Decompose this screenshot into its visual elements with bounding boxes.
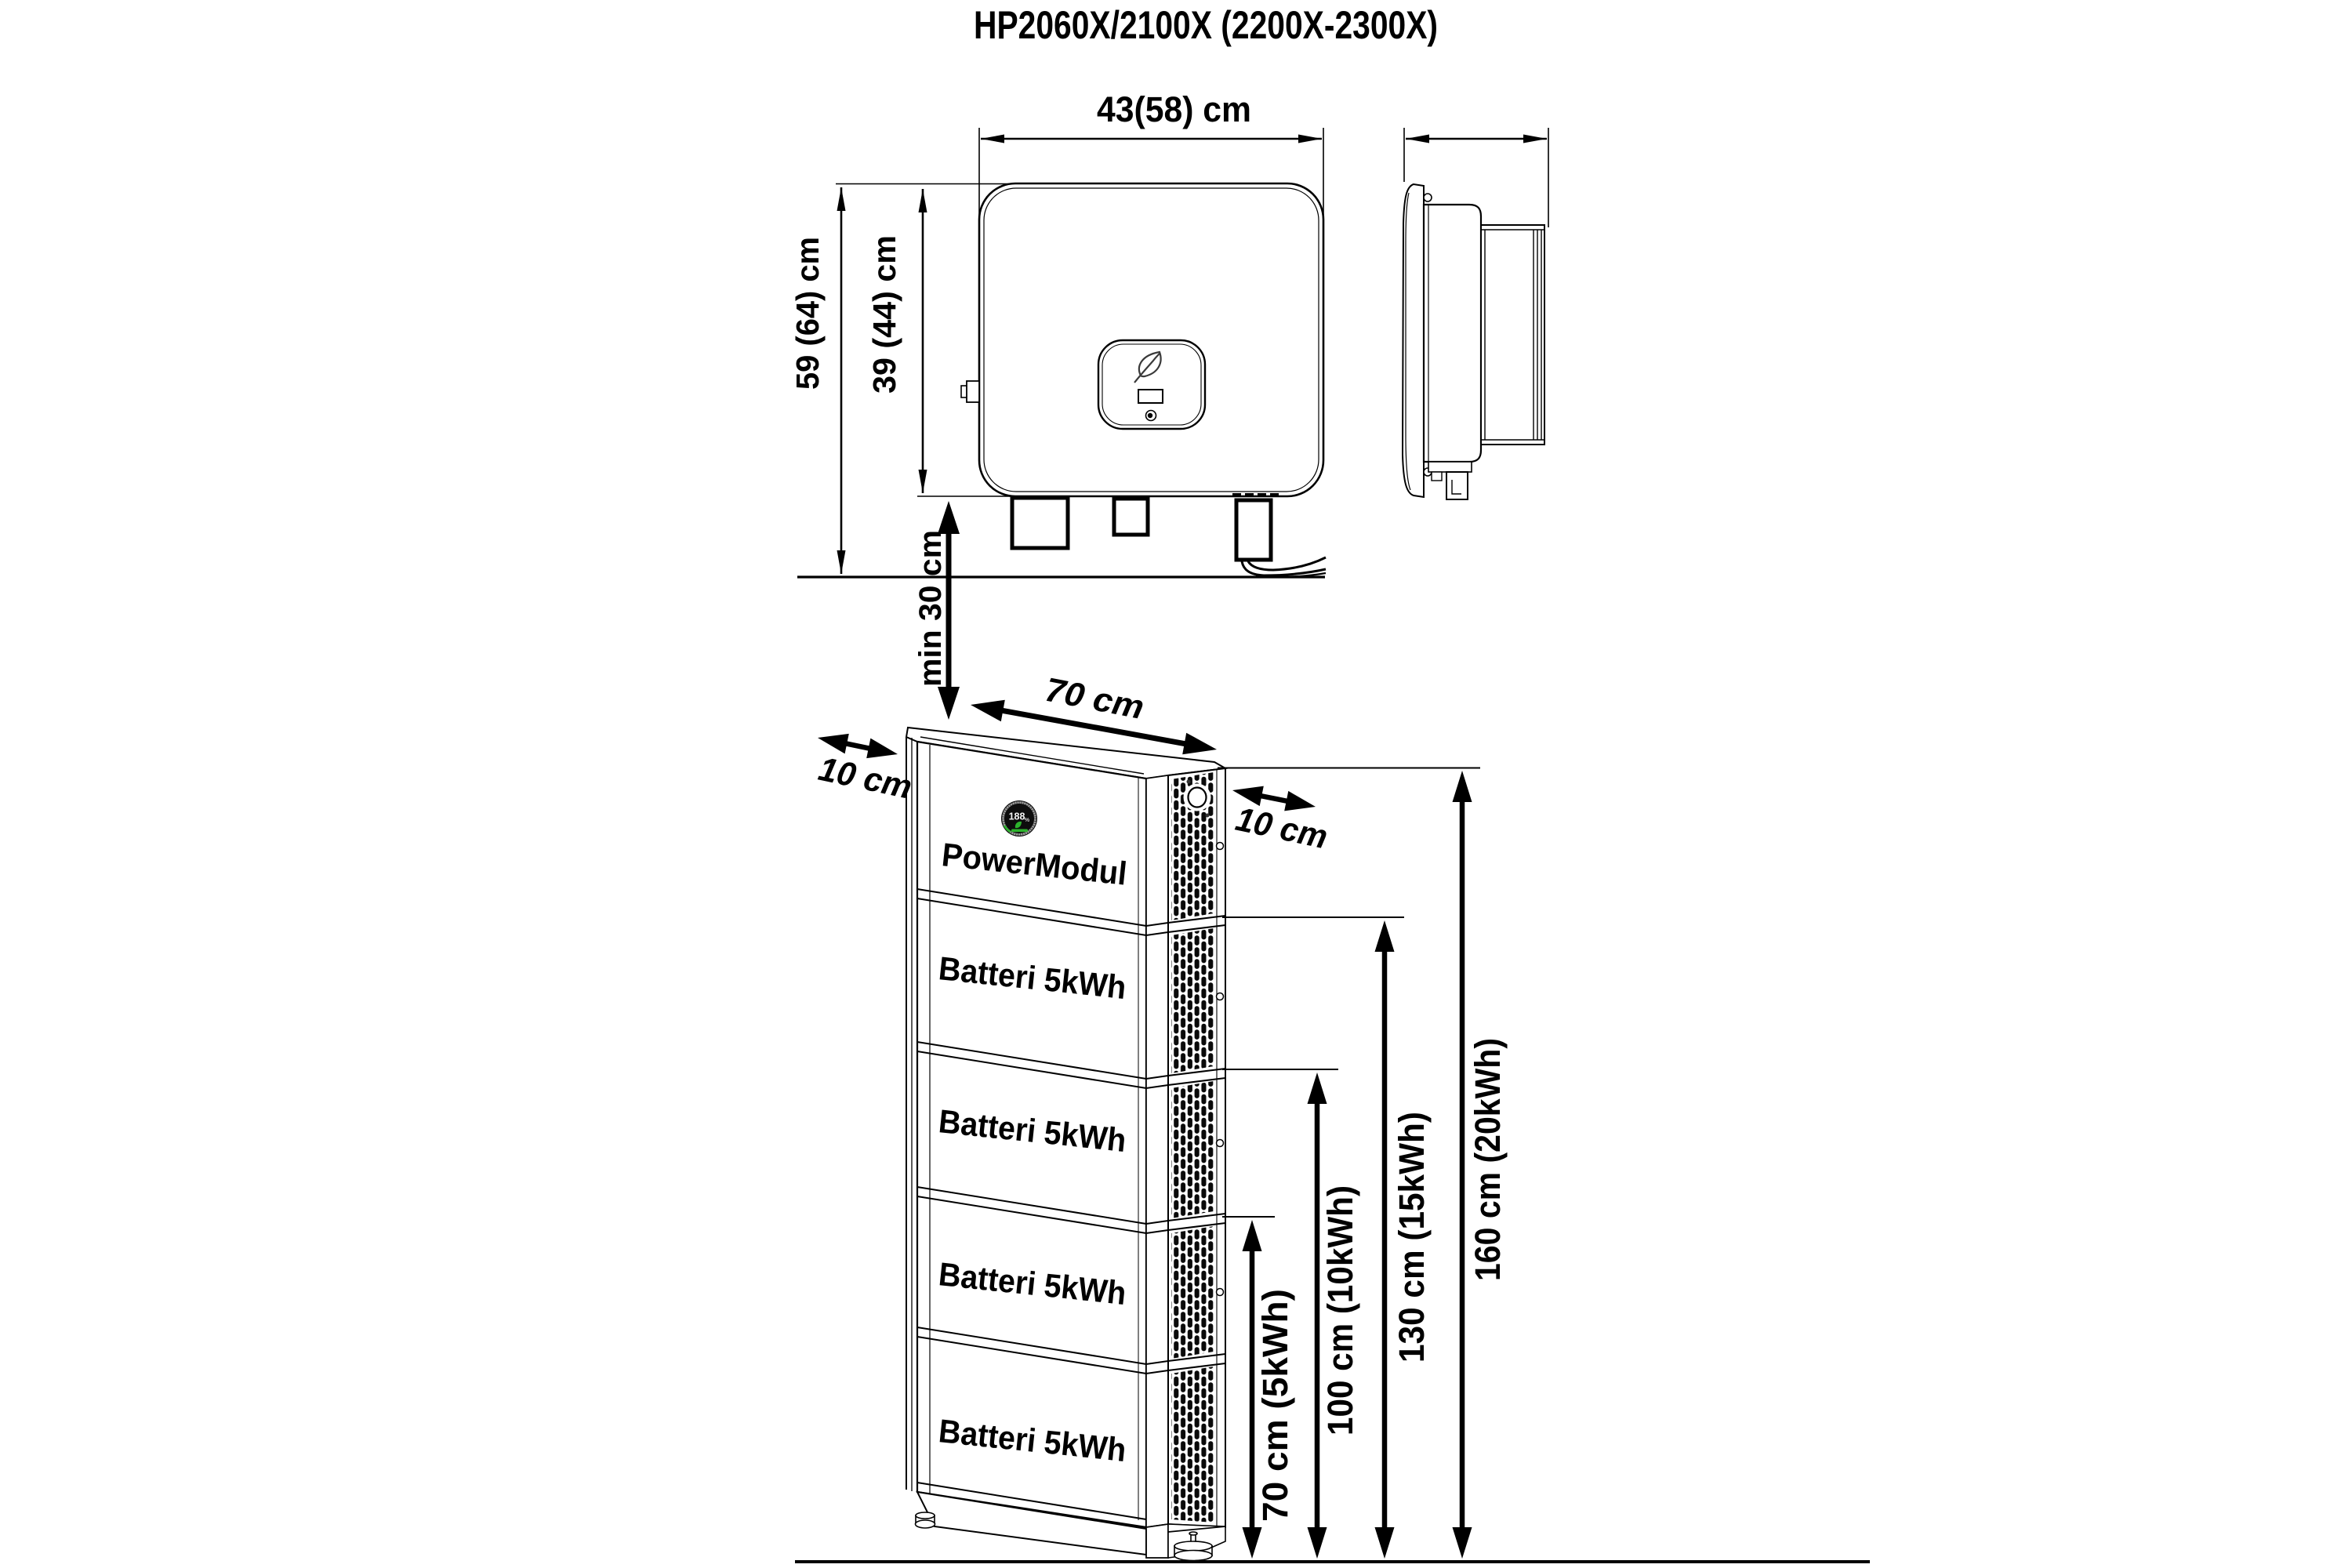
svg-text:70 cm (5kWh): 70 cm (5kWh) [1255,1289,1295,1522]
svg-text:188: 188 [1009,811,1025,822]
svg-text:%: % [1025,818,1030,823]
svg-text:39 (44) cm: 39 (44) cm [866,235,902,394]
svg-text:HP2060X/2100X (2200X-2300X): HP2060X/2100X (2200X-2300X) [974,3,1438,47]
svg-text:min 30 cm: min 30 cm [913,530,948,687]
svg-text:43(58) cm: 43(58) cm [1097,89,1251,129]
svg-text:59 (64) cm: 59 (64) cm [789,237,826,390]
svg-text:130 cm (15kWh): 130 cm (15kWh) [1392,1112,1432,1363]
svg-text:100 cm (10kWh): 100 cm (10kWh) [1320,1185,1360,1436]
svg-text:160 cm (20kWh): 160 cm (20kWh) [1468,1038,1508,1281]
